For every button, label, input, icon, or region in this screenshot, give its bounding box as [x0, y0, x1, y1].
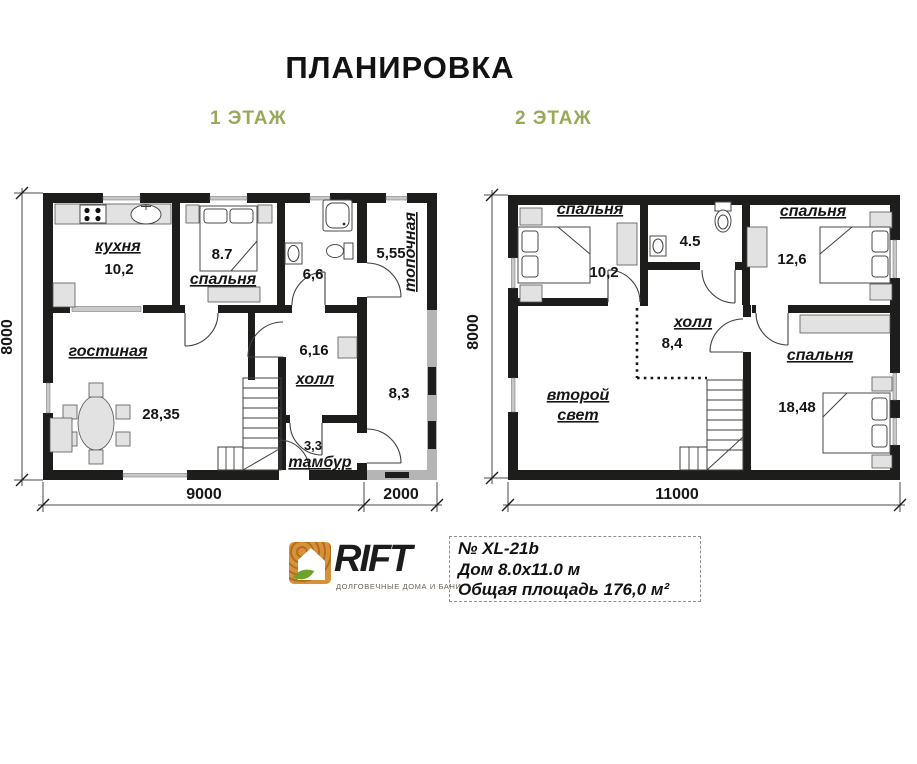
dim-bottom: 11000 — [655, 486, 699, 503]
chair-icon — [89, 450, 103, 464]
floor1-label: 1 ЭТАЖ — [210, 108, 287, 130]
bedroom3-furniture — [800, 315, 892, 468]
room-label-bedroom3: спальня — [787, 347, 854, 364]
bedroom2-furniture — [747, 212, 892, 300]
dim-bottom-side: 2000 — [383, 486, 419, 503]
room-label-bedroom: спальня — [190, 271, 257, 288]
room-label-void-2: свет — [557, 407, 598, 424]
door-arc — [185, 313, 218, 346]
plan-info-box: № XL-21b Дом 8.0х11.0 м Общая площадь 17… — [449, 536, 701, 602]
room-label-hall2: холл — [673, 314, 712, 331]
room-area-kitchen: 10,2 — [104, 261, 133, 278]
room-area-side: 8,3 — [389, 385, 410, 402]
plan-number: № XL-21b — [458, 539, 700, 560]
wardrobe-icon — [800, 315, 890, 333]
brand-tagline: ДОЛГОВЕЧНЫЕ ДОМА И БАНИ — [336, 582, 461, 591]
dining-table-icon — [78, 396, 114, 450]
chair-icon — [63, 405, 77, 419]
cabinet-icon — [338, 337, 357, 358]
shower-icon — [323, 200, 352, 231]
nightstand-icon — [872, 455, 892, 468]
room-label-hall: холл — [295, 371, 334, 388]
toilet-icon — [344, 243, 353, 259]
room-area-living: 28,35 — [142, 406, 180, 423]
room-area-bedroom2: 12,6 — [777, 251, 806, 268]
nightstand-icon — [870, 212, 892, 228]
kitchen-fixtures — [53, 204, 171, 307]
room-area-bedroom3: 18,48 — [778, 399, 816, 416]
nightstand-icon — [520, 285, 542, 302]
room-label-void-1: второй — [547, 387, 610, 404]
room-area-bedroom: 8.7 — [212, 246, 233, 263]
nightstand-icon — [520, 208, 542, 225]
room-area-tambour: 3,3 — [304, 438, 322, 453]
nightstand-icon — [872, 377, 892, 391]
room-label-living: гостиная — [69, 343, 148, 360]
hall1-furniture — [338, 337, 357, 358]
nightstand-icon — [258, 205, 272, 223]
cabinet-icon — [50, 418, 72, 452]
dim-left: 8000 — [0, 319, 16, 355]
dim-bottom-main: 9000 — [186, 486, 222, 503]
chair-icon — [116, 432, 130, 446]
page-title: ПЛАНИРОВКА — [250, 50, 550, 86]
floor2-stairs — [680, 380, 743, 470]
door-arc — [756, 313, 788, 345]
room-label-bedroom1: спальня — [557, 201, 624, 218]
room-label-boiler: топочная — [402, 212, 419, 292]
room-area-bathroom2: 4.5 — [680, 233, 701, 250]
stove-icon — [80, 205, 106, 223]
floor2-label: 2 ЭТАЖ — [515, 108, 592, 130]
floor1-plan: 8000 9000 2000 кухня 10,2 8.7 спальня 6,… — [0, 178, 460, 530]
floor1-stairs — [218, 378, 281, 470]
logo-icon — [288, 541, 332, 585]
living-furniture — [50, 383, 130, 464]
room-area-hall2: 8,4 — [662, 335, 684, 352]
room-area-hall: 6,16 — [299, 342, 328, 359]
wardrobe-icon — [617, 223, 637, 265]
room-label-bedroom2: спальня — [780, 203, 847, 220]
nightstand-icon — [870, 284, 892, 300]
floor2-doors — [608, 270, 788, 352]
door-arc — [702, 270, 735, 303]
bedroom1-furniture — [518, 208, 637, 302]
chair-icon — [89, 383, 103, 397]
door-arc — [367, 263, 401, 297]
bathroom1-fixtures — [285, 200, 353, 264]
wardrobe-icon — [747, 227, 767, 267]
room-label-tambour: тамбур — [288, 454, 351, 471]
chair-icon — [116, 405, 130, 419]
total-area: Общая площадь 176,0 м² — [458, 580, 700, 601]
dresser-icon — [208, 287, 260, 302]
door-arc — [367, 429, 401, 463]
room-area-bedroom1: 10,2 — [589, 264, 618, 281]
house-size: Дом 8.0х11.0 м — [458, 560, 700, 581]
brand-logo-text: RIFT — [334, 538, 410, 581]
room-label-kitchen: кухня — [95, 238, 141, 255]
door-arc — [710, 319, 743, 352]
dim-left: 8000 — [465, 314, 482, 350]
fridge-icon — [53, 283, 75, 307]
room-area-bathroom: 6,6 — [303, 266, 324, 283]
nightstand-icon — [186, 205, 199, 223]
floor2-plan: 8000 11000 спальня 10,2 4.5 спальня 12,6… — [460, 178, 917, 530]
